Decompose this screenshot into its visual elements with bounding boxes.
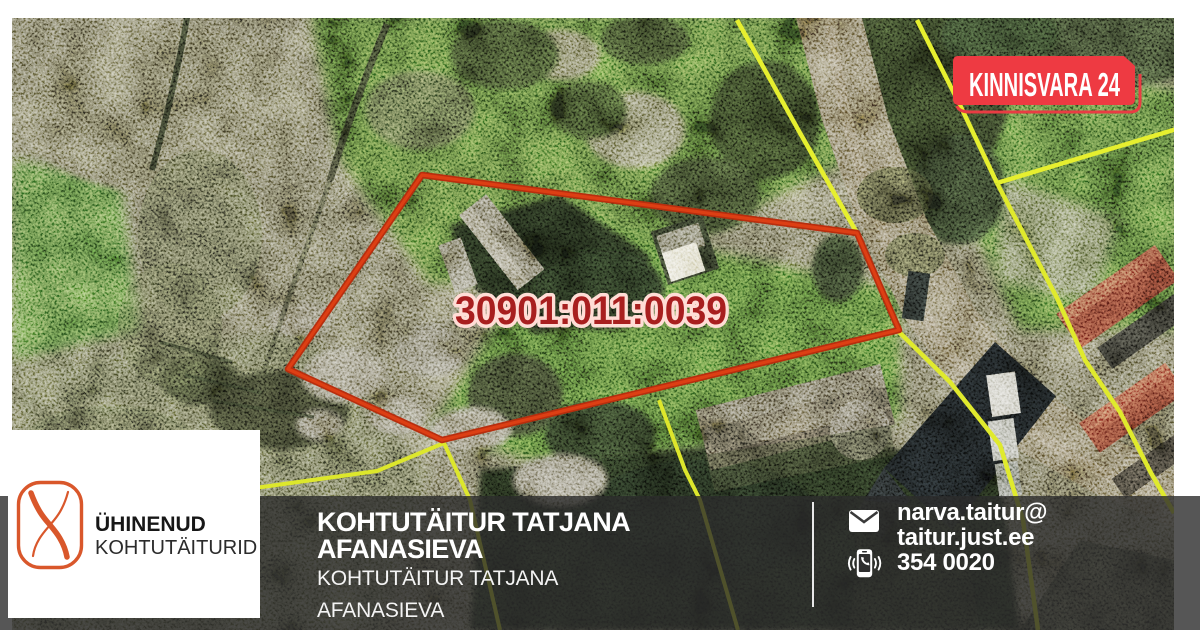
svg-text:30901:011:0039: 30901:011:0039 xyxy=(455,289,727,333)
svg-text:KINNISVARA 24: KINNISVARA 24 xyxy=(969,66,1120,103)
